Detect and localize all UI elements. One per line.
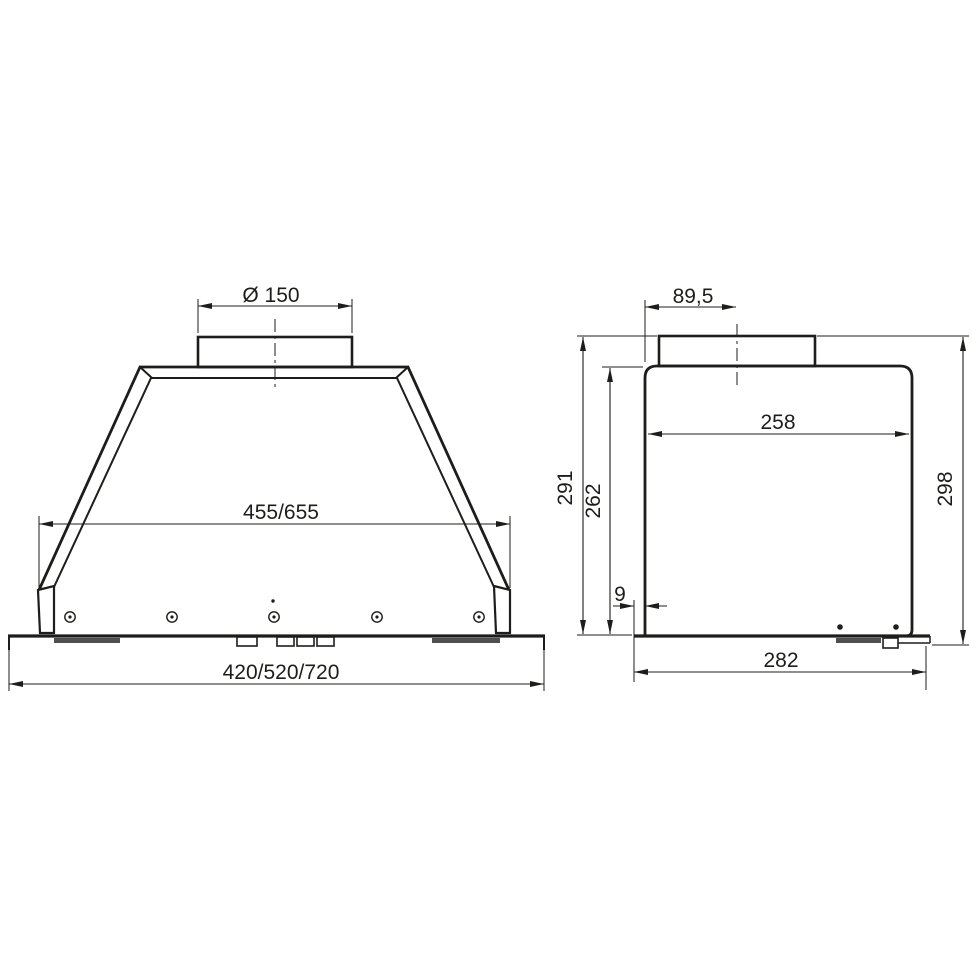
side-gasket xyxy=(836,638,881,643)
control-button xyxy=(237,637,257,646)
dim-body-width: 455/655 xyxy=(39,501,510,590)
dim-label-duct-diameter: Ø 150 xyxy=(242,284,299,307)
front-right-foot xyxy=(494,586,510,633)
screw-center xyxy=(375,615,378,618)
dim-bottom-overhang: 9 xyxy=(613,583,667,682)
control-button xyxy=(277,637,294,646)
side-tab xyxy=(883,638,898,648)
dim-label-inner-depth: 258 xyxy=(760,411,795,434)
dim-label-body-height: 262 xyxy=(582,483,605,518)
screw-dot xyxy=(837,624,843,630)
screw-center xyxy=(68,615,71,618)
dim-overall-width: 420/520/720 xyxy=(9,650,544,691)
dim-label-body-width: 455/655 xyxy=(243,501,319,524)
dim-label-overall-width: 420/520/720 xyxy=(223,661,340,684)
dim-label-base-depth: 282 xyxy=(763,649,798,672)
canopy-miter-left xyxy=(140,367,152,378)
control-button xyxy=(317,637,334,646)
dim-label-bottom-overhang: 9 xyxy=(614,583,626,606)
gasket-right xyxy=(432,638,500,643)
dim-label-overall-height: 298 xyxy=(934,471,957,506)
side-body-outline xyxy=(645,366,912,636)
screw-center xyxy=(272,615,275,618)
pilot-dot xyxy=(271,599,274,602)
screw-center xyxy=(477,615,480,618)
drawing-canvas: Ø 150 455/655 420/520/720 xyxy=(0,0,971,971)
dim-label-height-to-duct: 291 xyxy=(554,470,577,505)
control-button xyxy=(297,637,314,646)
dim-label-duct-offset: 89,5 xyxy=(673,285,714,308)
screw-center xyxy=(170,615,173,618)
front-screws xyxy=(65,599,484,622)
dim-overall-height: 298 xyxy=(817,336,969,645)
dim-height-to-duct: 291 xyxy=(554,336,657,635)
screw-dot xyxy=(893,624,899,630)
front-view: Ø 150 455/655 420/520/720 xyxy=(8,284,545,691)
front-left-foot xyxy=(38,586,54,633)
canopy-outer-outline xyxy=(39,367,509,590)
gasket-left xyxy=(54,638,120,643)
hood-dimension-drawing: Ø 150 455/655 420/520/720 xyxy=(0,0,971,971)
canopy-miter-right xyxy=(396,367,408,378)
dim-inner-depth: 258 xyxy=(648,411,909,434)
side-view: 89,5 258 291 262 9 xyxy=(554,285,969,690)
dim-body-height: 262 xyxy=(582,367,643,634)
dim-base-depth: 282 xyxy=(634,646,926,690)
